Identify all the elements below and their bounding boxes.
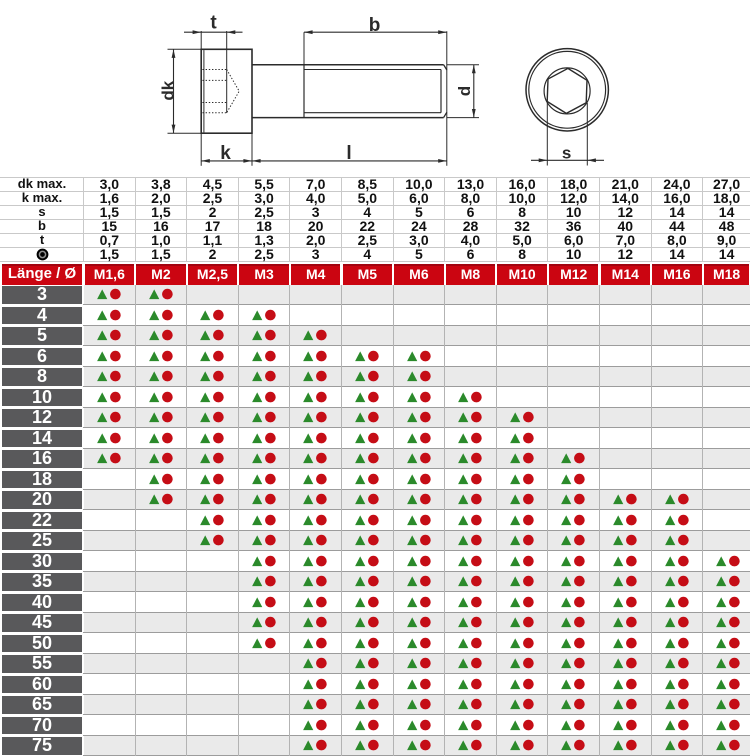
svg-text:l: l (346, 143, 351, 164)
svg-text:k: k (220, 143, 231, 164)
svg-text:b: b (369, 15, 381, 36)
svg-text:t: t (210, 13, 217, 34)
svg-text:s: s (562, 144, 571, 163)
svg-text:d: d (455, 86, 474, 96)
svg-text:dk: dk (159, 80, 178, 100)
